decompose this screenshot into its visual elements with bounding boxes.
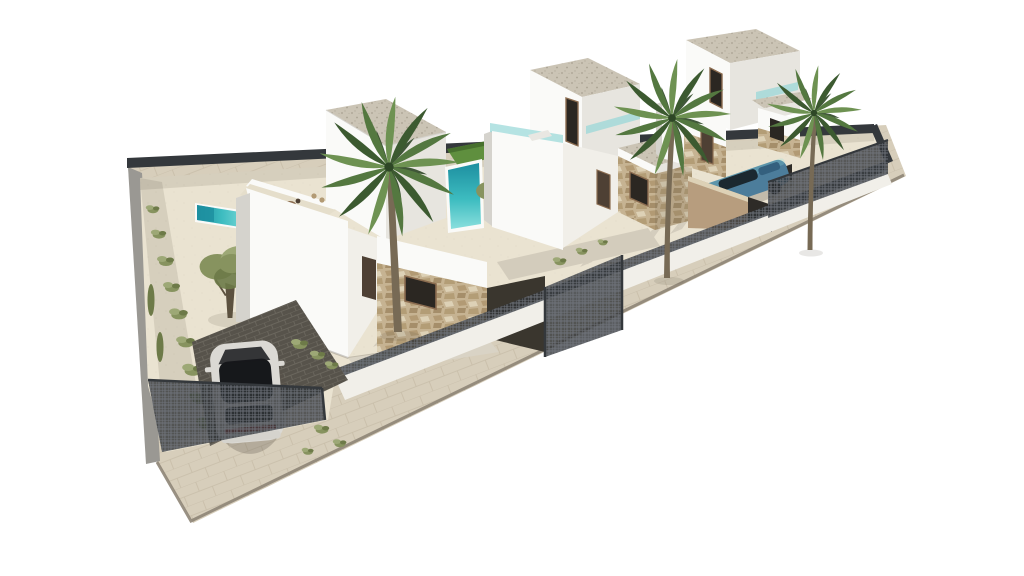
architectural-render — [0, 0, 1024, 576]
entrance-door-middle — [597, 170, 610, 209]
pool-middle — [445, 159, 484, 233]
window-right-upper — [710, 68, 722, 108]
render-canvas — [0, 0, 1024, 576]
window-middle-upper — [566, 98, 578, 146]
entrance-door-left — [362, 256, 376, 300]
